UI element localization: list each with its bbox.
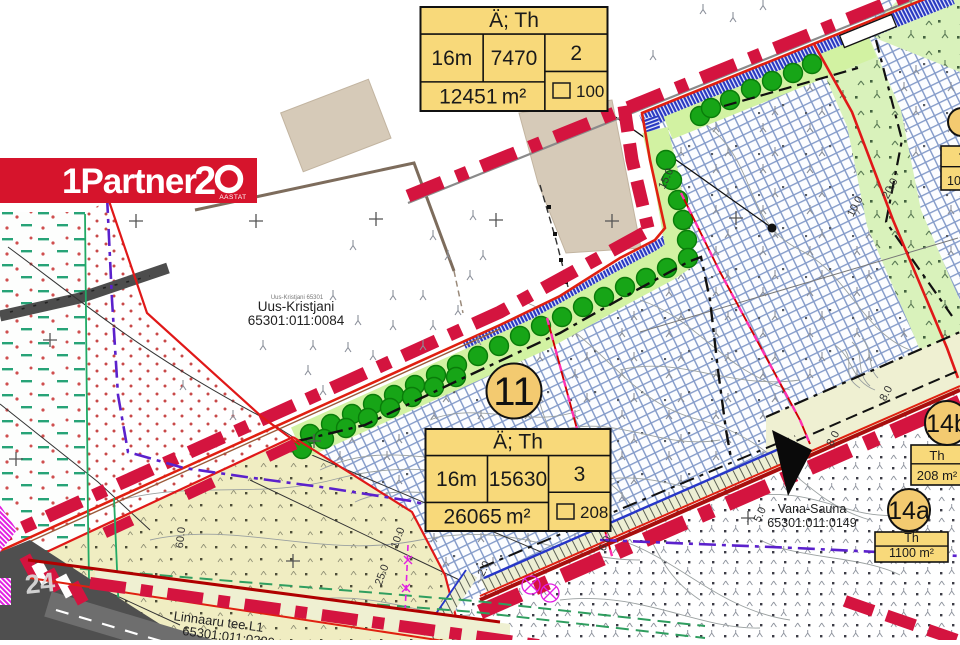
svg-text:Vana-Sauna: Vana-Sauna (778, 502, 847, 516)
svg-text:2: 2 (570, 42, 582, 65)
svg-text:15630: 15630 (489, 468, 547, 491)
svg-text:1100 m²: 1100 m² (889, 546, 934, 560)
svg-text:26065 m²: 26065 m² (443, 506, 530, 529)
svg-text:AASTAT: AASTAT (219, 194, 246, 201)
svg-text:24: 24 (23, 567, 56, 600)
svg-text:7470: 7470 (491, 47, 538, 70)
svg-text:1Partner: 1Partner (62, 162, 197, 201)
svg-text:14a: 14a (888, 497, 930, 525)
svg-text:208 m²: 208 m² (917, 468, 958, 483)
svg-text:Uus-Kristjani: Uus-Kristjani (258, 299, 335, 314)
svg-text:100: 100 (576, 82, 604, 101)
svg-text:100 m²: 100 m² (947, 174, 960, 188)
svg-text:16m: 16m (431, 47, 472, 70)
svg-text:Th: Th (904, 531, 919, 545)
svg-text:16m: 16m (436, 468, 477, 491)
svg-text:208: 208 (580, 503, 608, 522)
svg-text:3: 3 (574, 463, 586, 486)
svg-text:12451 m²: 12451 m² (439, 85, 526, 108)
svg-text:65301:011:0084: 65301:011:0084 (248, 313, 345, 328)
svg-text:Ä; Th: Ä; Th (489, 9, 539, 32)
svg-text:65301:011:0149: 65301:011:0149 (767, 516, 856, 530)
svg-text:Th: Th (929, 448, 944, 463)
svg-text:Ä; Th: Ä; Th (493, 431, 543, 454)
svg-text:11: 11 (493, 370, 535, 414)
svg-text:14b: 14b (926, 410, 960, 438)
svg-text:2: 2 (194, 159, 216, 203)
svg-text:Uus-Kristjani 65301: Uus-Kristjani 65301 (271, 295, 324, 301)
